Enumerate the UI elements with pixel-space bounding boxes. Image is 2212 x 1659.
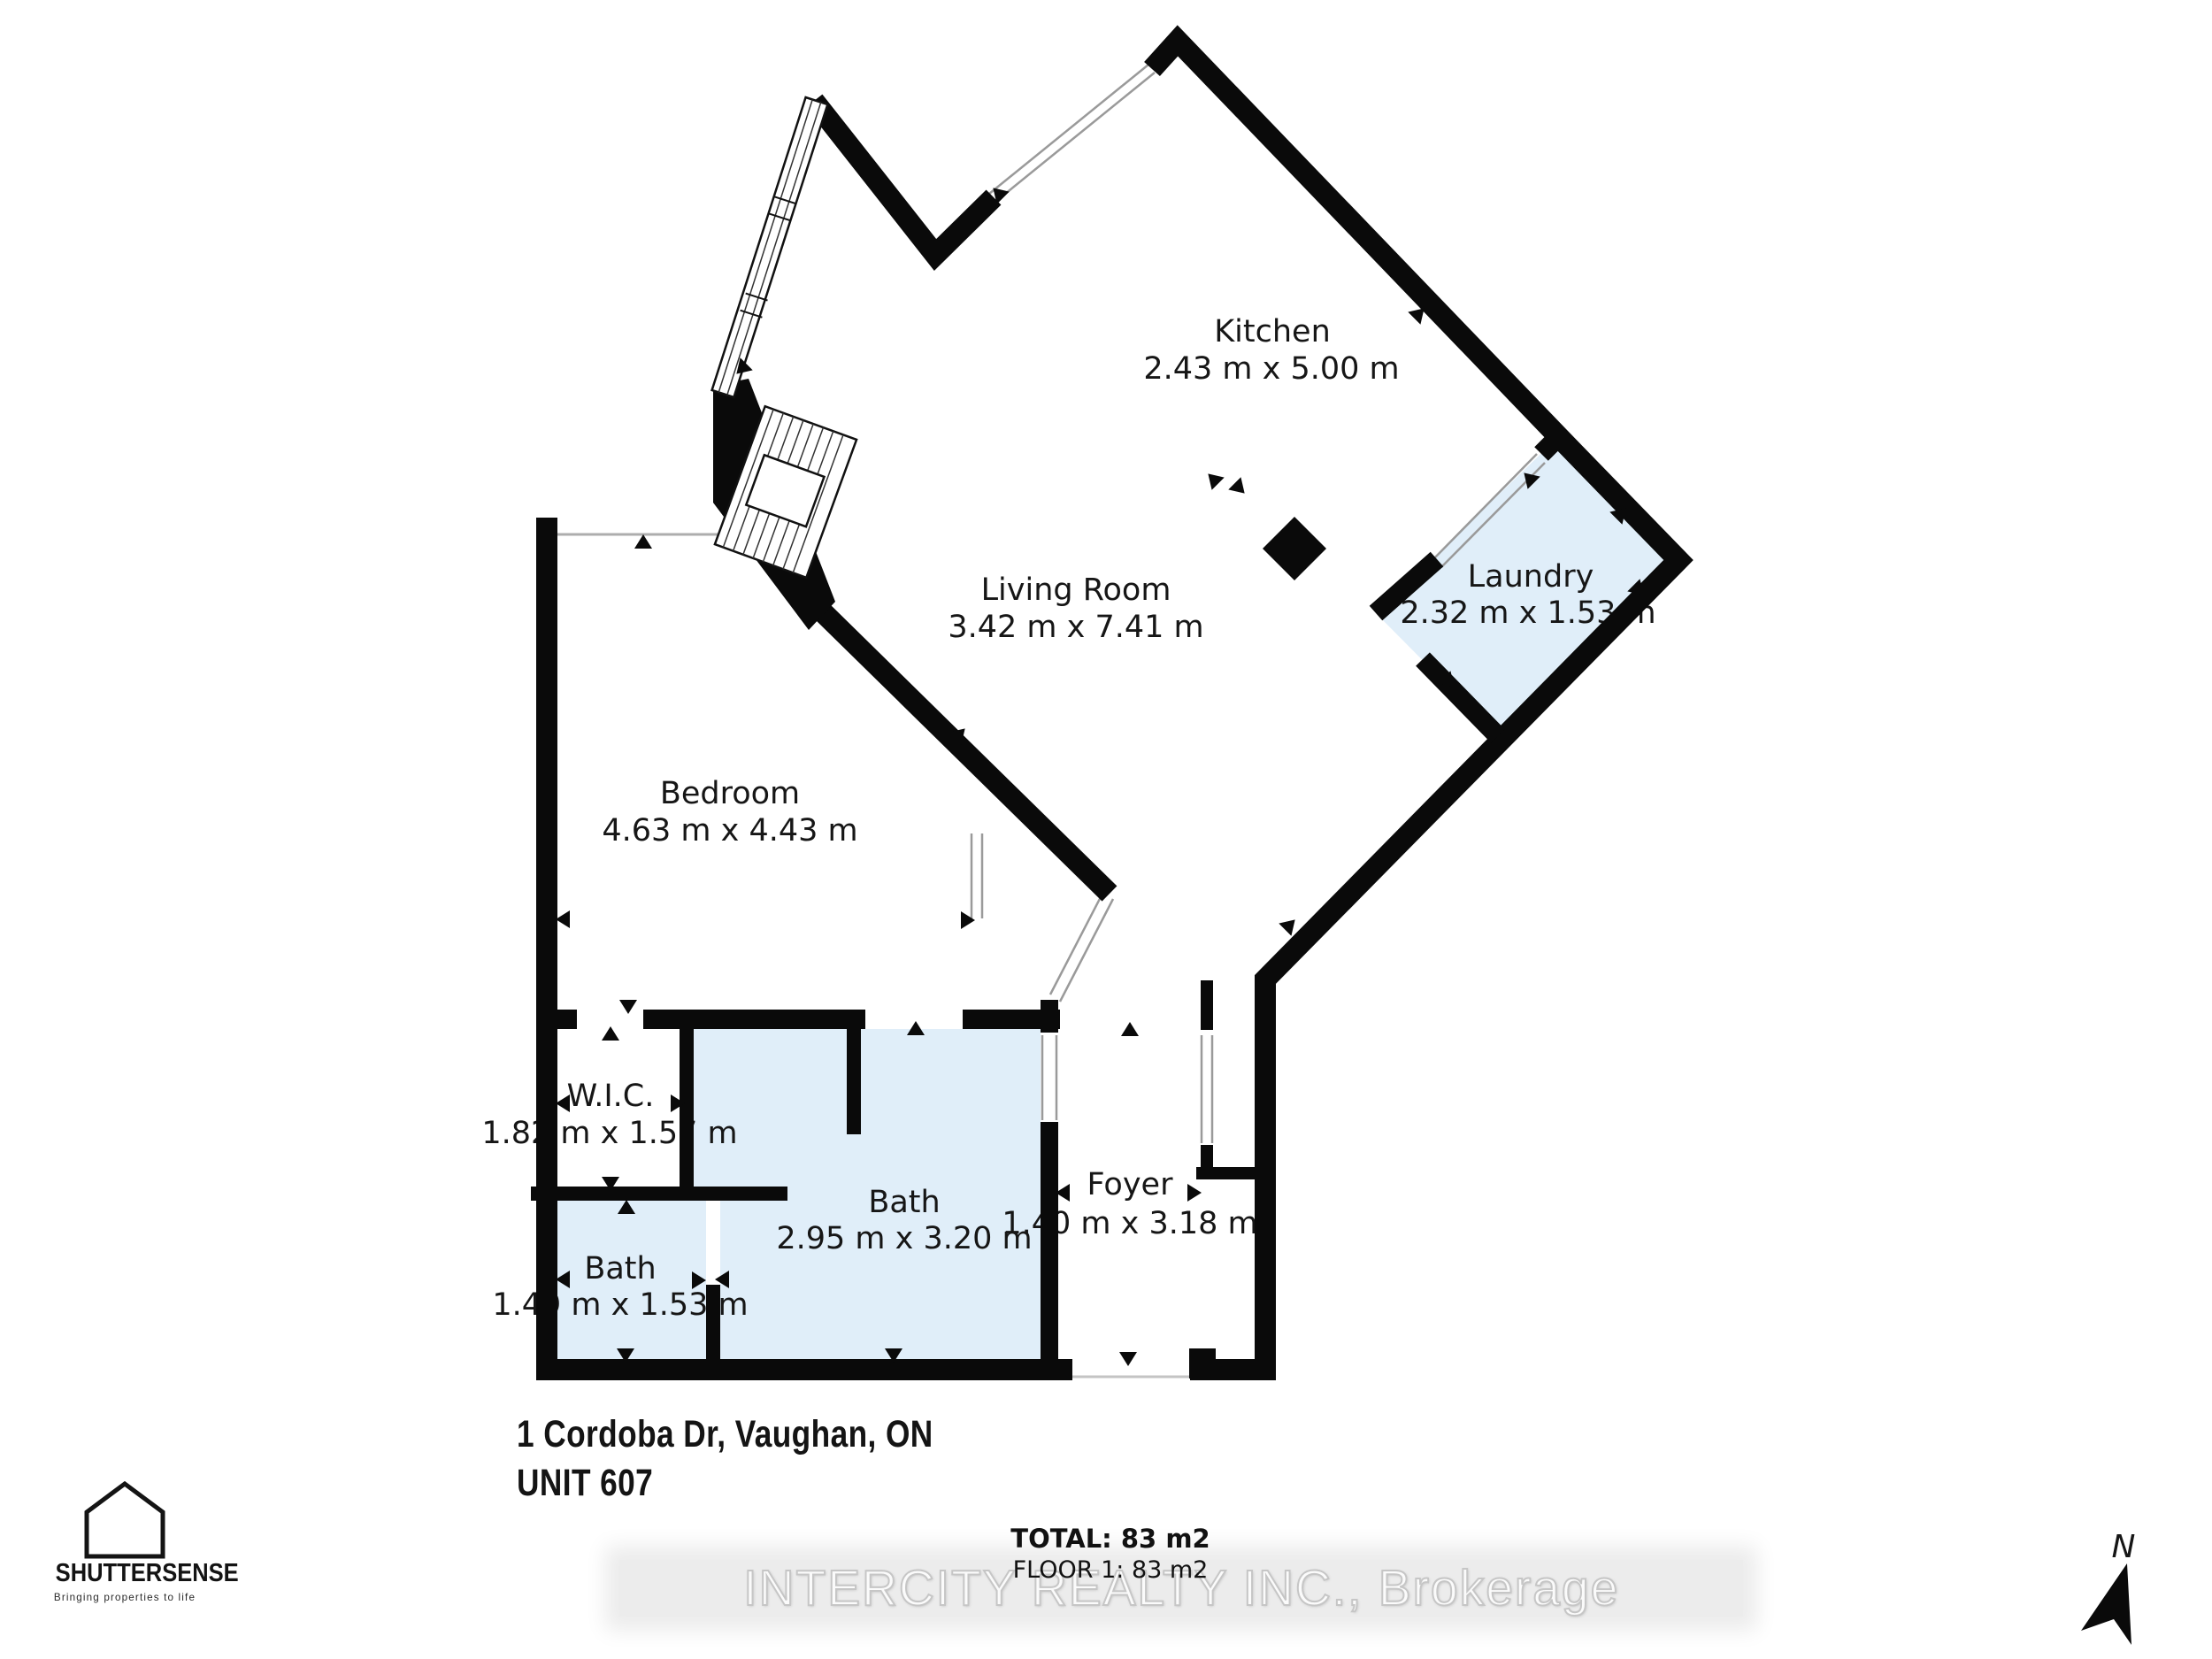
brand-logo: SHUTTERSENSE Bringing properties to life xyxy=(46,1481,204,1603)
living-room-dims: 3.42 m x 7.41 m xyxy=(948,610,1203,645)
kitchen-label: Kitchen xyxy=(1214,314,1331,349)
bedroom-label: Bedroom xyxy=(660,776,800,811)
wic-label: W.I.C. xyxy=(567,1079,655,1114)
room-labels: Kitchen 2.43 m x 5.00 m Living Room 3.42… xyxy=(481,314,1655,1323)
address-line2: UNIT 607 xyxy=(517,1459,933,1508)
bedroom-side-door-jambs xyxy=(972,833,982,918)
north-label: N xyxy=(2112,1529,2136,1565)
bedroom-diagonal-wall xyxy=(821,611,1110,894)
dim-arrow xyxy=(1121,1022,1139,1036)
entry-jamb-block xyxy=(1189,1348,1216,1379)
balcony-notch-wall xyxy=(814,101,994,255)
bath-large-label: Bath xyxy=(868,1185,940,1220)
brand-name: SHUTTERSENSE xyxy=(56,1559,195,1588)
dim-arrow xyxy=(619,1000,637,1014)
foyer-closet-wall xyxy=(1196,980,1260,1179)
kitchen-dims: 2.43 m x 5.00 m xyxy=(1143,351,1399,387)
address-block: 1 Cordoba Dr, Vaughan, ON UNIT 607 xyxy=(517,1410,933,1508)
foyer-label: Foyer xyxy=(1087,1167,1174,1202)
north-arrow: N xyxy=(2069,1506,2157,1647)
area-summary: TOTAL: 83 m2 FLOOR 1: 83 m2 xyxy=(1010,1524,1210,1584)
angled-window xyxy=(712,97,828,397)
bedroom-dims: 4.63 m x 4.43 m xyxy=(602,813,857,849)
address-line1: 1 Cordoba Dr, Vaughan, ON xyxy=(517,1410,933,1459)
balcony-window xyxy=(989,65,1155,202)
dim-arrow xyxy=(961,911,975,929)
laundry-label: Laundry xyxy=(1468,559,1594,595)
dim-arrow xyxy=(1119,1352,1137,1366)
living-room-label: Living Room xyxy=(981,572,1171,608)
bedroom-door-jambs xyxy=(1050,892,1113,1002)
dim-arrow xyxy=(556,1094,570,1112)
dim-arrow xyxy=(602,1026,619,1041)
dim-arrow xyxy=(556,910,570,928)
brand-tagline: Bringing properties to life xyxy=(49,1591,202,1603)
floor-plan: Kitchen 2.43 m x 5.00 m Living Room 3.42… xyxy=(0,0,2212,1659)
floorplan-page: Kitchen 2.43 m x 5.00 m Living Room 3.42… xyxy=(0,0,2212,1659)
dim-arrow xyxy=(1187,1184,1202,1202)
closet-door-jambs xyxy=(1202,1035,1212,1143)
total-area: TOTAL: 83 m2 xyxy=(1010,1524,1210,1554)
dim-arrow xyxy=(1228,477,1250,499)
bath-small-label: Bath xyxy=(584,1251,656,1286)
bath-large-dims: 2.95 m x 3.20 m xyxy=(776,1221,1032,1256)
column xyxy=(1263,517,1326,580)
dim-arrow xyxy=(1202,467,1224,489)
wic-dims: 1.82 m x 1.57 m xyxy=(481,1116,737,1151)
foyer-dims: 1.40 m x 3.18 m xyxy=(1002,1206,1257,1241)
house-icon xyxy=(84,1481,165,1559)
floor-area: FLOOR 1: 83 m2 xyxy=(1010,1556,1210,1584)
bath-door-jambs xyxy=(1042,1035,1056,1120)
dim-arrow xyxy=(907,1021,925,1035)
dim-arrow xyxy=(634,534,652,549)
north-needle xyxy=(2081,1563,2131,1645)
